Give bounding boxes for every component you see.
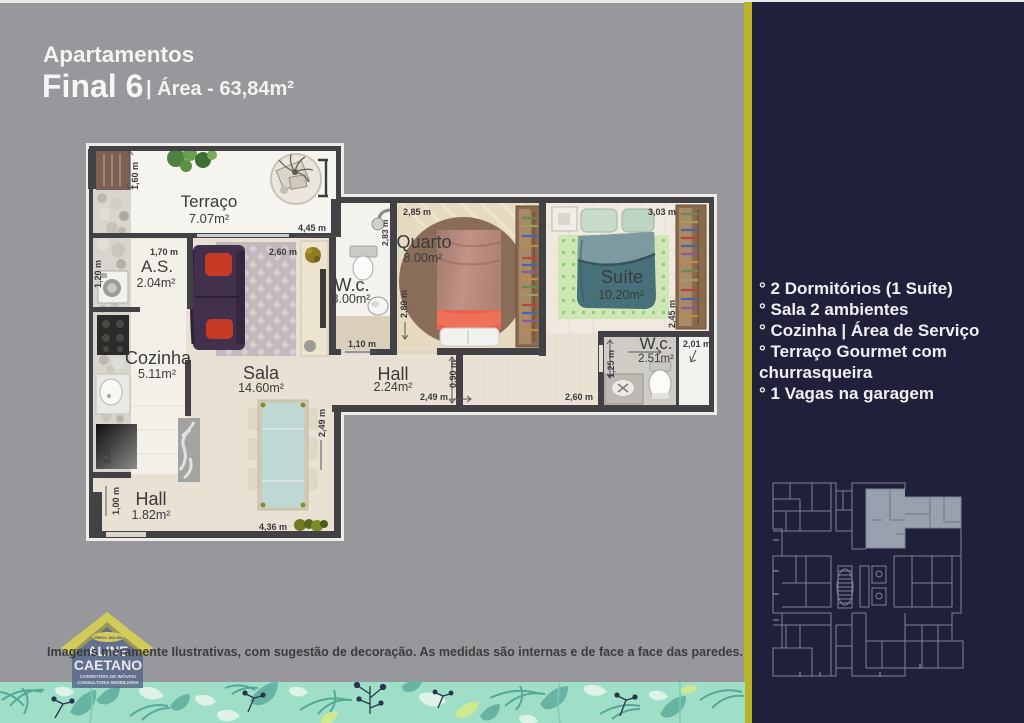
- svg-text:° Terraço Gourmet com: ° Terraço Gourmet com: [759, 342, 947, 361]
- svg-text:A.S.: A.S.: [141, 257, 173, 276]
- svg-text:Terraço: Terraço: [181, 192, 238, 211]
- svg-text:churrasqueira: churrasqueira: [759, 363, 873, 382]
- svg-text:3,03 m: 3,03 m: [648, 207, 676, 217]
- svg-text:8.00m²: 8.00m²: [332, 292, 371, 306]
- svg-text:2,01 m: 2,01 m: [683, 339, 711, 349]
- svg-text:CONSULTORIA IMOBILIÁRIA: CONSULTORIA IMOBILIÁRIA: [77, 679, 139, 685]
- svg-text:10.20m²: 10.20m²: [598, 288, 644, 302]
- svg-text:5.11m²: 5.11m²: [138, 367, 176, 381]
- svg-text:Hall: Hall: [135, 489, 166, 509]
- svg-text:0,90 m: 0,90 m: [448, 360, 458, 388]
- svg-text:2,60 m: 2,60 m: [565, 392, 593, 402]
- svg-text:CORRETORA DE IMÓVEIS: CORRETORA DE IMÓVEIS: [80, 672, 136, 679]
- svg-text:1,10 m: 1,10 m: [348, 339, 376, 349]
- svg-text:3,20 m: 3,20 m: [102, 436, 112, 464]
- svg-text:2,85 m: 2,85 m: [403, 207, 431, 217]
- svg-text:° 1 Vagas na garagem: ° 1 Vagas na garagem: [759, 384, 934, 403]
- svg-text:Cozinha: Cozinha: [125, 348, 192, 368]
- svg-text:° Cozinha | Área de Serviço: ° Cozinha | Área de Serviço: [759, 321, 979, 340]
- svg-text:1,00 m: 1,00 m: [111, 487, 121, 515]
- svg-text:1.82m²: 1.82m²: [132, 508, 171, 522]
- svg-text:Quarto: Quarto: [396, 232, 451, 252]
- svg-text:° Sala 2 ambientes: ° Sala 2 ambientes: [759, 300, 908, 319]
- svg-text:CAETANO: CAETANO: [74, 657, 142, 673]
- svg-text:Imagens meramente Ilustrativas: Imagens meramente Ilustrativas, com suge…: [47, 645, 743, 659]
- svg-text:Sala: Sala: [243, 363, 280, 383]
- svg-text:Final 6: Final 6: [42, 68, 143, 104]
- svg-text:Suíte: Suíte: [601, 267, 643, 287]
- svg-text:1,70 m: 1,70 m: [150, 247, 178, 257]
- svg-text:CRECI: 183.266: CRECI: 183.266: [93, 635, 123, 640]
- svg-text:2,49 m: 2,49 m: [420, 392, 448, 402]
- svg-text:2.04m²: 2.04m²: [137, 276, 176, 290]
- svg-text:2,45 m: 2,45 m: [667, 300, 677, 328]
- svg-text:Apartamentos: Apartamentos: [43, 42, 194, 67]
- svg-text:2.51m²: 2.51m²: [638, 353, 674, 365]
- svg-text:1,20 m: 1,20 m: [93, 260, 103, 288]
- svg-text:2,83 m: 2,83 m: [380, 219, 390, 246]
- svg-text:14.60m²: 14.60m²: [238, 381, 284, 395]
- svg-text:° 2 Dormitórios (1 Suíte): ° 2 Dormitórios (1 Suíte): [759, 279, 953, 298]
- svg-text:| Área - 63,84m²: | Área - 63,84m²: [146, 77, 294, 100]
- svg-text:2,60 m: 2,60 m: [269, 247, 297, 257]
- svg-text:1,25 m: 1,25 m: [606, 350, 616, 378]
- svg-text:1,60 m: 1,60 m: [130, 162, 140, 190]
- svg-text:W.c.: W.c.: [639, 334, 672, 353]
- svg-text:4,45 m: 4,45 m: [298, 223, 326, 233]
- svg-text:8.00m²: 8.00m²: [404, 251, 443, 265]
- svg-text:2,49 m: 2,49 m: [317, 409, 327, 437]
- svg-text:4,36 m: 4,36 m: [259, 522, 287, 532]
- svg-text:2,80 m: 2,80 m: [399, 290, 409, 318]
- svg-text:7.07m²: 7.07m²: [189, 211, 230, 226]
- svg-text:2.24m²: 2.24m²: [374, 380, 413, 394]
